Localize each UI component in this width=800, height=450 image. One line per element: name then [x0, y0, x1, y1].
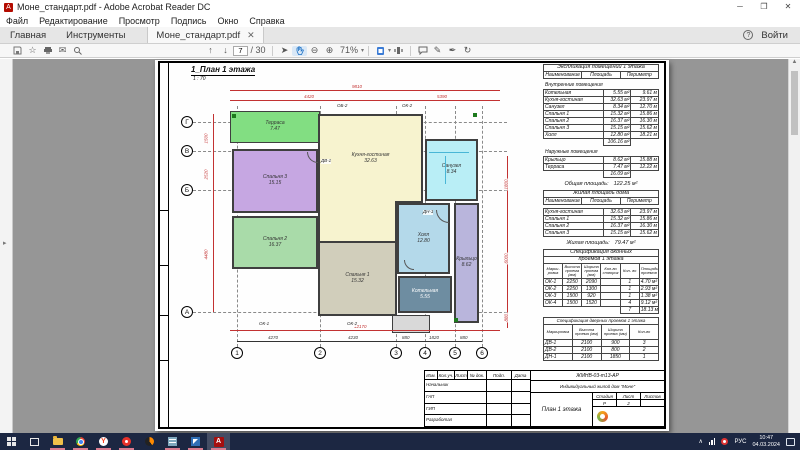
action-center-icon[interactable] — [786, 438, 795, 446]
table-cell: 4 — [620, 300, 639, 307]
element: 8.62 — [462, 263, 472, 269]
element: 5390 — [436, 95, 448, 100]
menu-bar: Файл Редактирование Просмотр Подпись Окн… — [0, 14, 800, 27]
explication-rows: Котельная5.55 м²9.61 м Кухня-гостиная32.… — [543, 89, 659, 146]
menu-sign[interactable]: Подпись — [171, 16, 207, 26]
element — [191, 437, 200, 446]
element: 880 — [505, 313, 510, 323]
element — [145, 437, 154, 446]
element: 122.25 м² — [614, 181, 638, 187]
element: ЖМНВ-03-т13-АР Индивидуальный жилой дом … — [531, 371, 664, 426]
table-cell: ДВ-2 — [544, 347, 573, 354]
table-cell: 9.12 м² — [639, 300, 658, 307]
window-controls: ─ ❐ ✕ — [728, 0, 800, 14]
blue-app-icon[interactable] — [184, 433, 207, 450]
table-cell: 16.30 м — [631, 118, 659, 125]
table-row: ДВ-221008002 — [544, 347, 659, 354]
table-row: ОК-12250209014.70 м² — [544, 279, 659, 286]
element — [158, 265, 168, 266]
element: Котельная5.55 м²9.61 м Кухня-гостиная32.… — [544, 90, 659, 146]
table-cell: Кол-во створок — [601, 264, 620, 279]
element — [418, 46, 428, 55]
windows-spec-table: Спецификация оконных проемов 1 этажа Мар… — [543, 249, 659, 314]
table-row: 106.16 м² — [544, 139, 659, 146]
table-cell: 18.13 м² — [639, 307, 658, 314]
yandex-browser-icon[interactable]: Y — [92, 433, 115, 450]
table-cell: Марки- ровка — [544, 264, 563, 279]
titleblock-role-row: Разработал — [425, 415, 530, 426]
element — [272, 46, 273, 56]
table-cell: 15.86 м — [631, 111, 659, 118]
axis-row: Г — [181, 116, 193, 128]
element: 7.47 — [270, 127, 280, 133]
table-cell: Кухня-гостиная — [544, 97, 604, 104]
element: 8.34 — [447, 170, 457, 176]
table-row: ОК-3150092011.38 м² — [544, 293, 659, 300]
pdf-page: 1_План 1 этажа 1 : 70 Терраса7.47 Спальн… — [155, 60, 669, 431]
tab-document[interactable]: Моне_стандарт.pdf ✕ — [147, 27, 263, 43]
table-cell: 15.15 м² — [603, 125, 631, 132]
tab-home[interactable]: Главная — [0, 27, 56, 43]
table-cell: Спальня 2 — [544, 223, 604, 230]
element: 2 — [617, 400, 641, 406]
element: Экспликация помещений 1 этажа Наименован… — [544, 65, 659, 79]
table-cell: 16.09 м² — [603, 171, 631, 178]
zoom-level[interactable]: 71% — [337, 44, 361, 57]
teal-app-icon[interactable] — [161, 433, 184, 450]
element — [487, 392, 512, 403]
tab-close-icon[interactable]: ✕ — [247, 30, 255, 41]
element: Начальник — [425, 380, 487, 391]
page-down-icon[interactable]: ↓ — [218, 44, 233, 57]
table-row: Экспликация помещений 1 этажа — [544, 65, 659, 72]
element — [43, 46, 53, 55]
element: 4270 — [268, 336, 278, 341]
menu-edit[interactable]: Редактирование — [39, 16, 108, 26]
table-cell: 4.70 м² — [639, 279, 658, 286]
table-cell: Спальня 1 — [544, 111, 604, 118]
table-row: ДН-1210018501 — [544, 354, 659, 361]
element: 1500 — [205, 132, 210, 144]
table-cell: 15.88 м — [631, 157, 659, 164]
table-cell: 900 — [601, 340, 630, 347]
hand-tool-icon[interactable] — [292, 46, 307, 56]
element: Листов — [641, 393, 664, 399]
page-number-input[interactable] — [233, 46, 248, 56]
dim-line — [230, 330, 500, 331]
table-cell: 1520 — [582, 300, 601, 307]
table-row: Котельная5.55 м²9.61 м — [544, 90, 659, 97]
table-cell: 15.86 м — [631, 216, 659, 223]
table-cell: Спальня 2 — [544, 118, 604, 125]
element: Р — [593, 400, 617, 406]
opening-mark: ОК-1 — [259, 322, 269, 327]
chevron-down-icon[interactable]: ▾ — [361, 47, 364, 54]
table-row: проемов 1 этажа — [544, 257, 659, 264]
notifier-badge-icon[interactable] — [721, 438, 728, 445]
element: Подп. — [487, 371, 512, 379]
table-cell: 1 — [620, 279, 639, 286]
tables-column: Экспликация помещений 1 этажа Наименован… — [543, 64, 659, 364]
element — [7, 442, 11, 446]
title-block: Изм. Кол.уч. Лист № док. Подп. Дата Нача… — [424, 370, 665, 427]
table-cell: Кол- во — [620, 264, 639, 279]
menu-file[interactable]: Файл — [6, 16, 28, 26]
language-indicator[interactable]: РУС — [734, 439, 746, 445]
zoom-out-icon[interactable]: ⊖ — [307, 44, 322, 57]
element: 2520 — [205, 168, 210, 180]
table-cell: проемов 1 этажа — [544, 257, 659, 264]
system-tray: ∧ РУС 10:47 04.03.2024 — [699, 435, 800, 448]
window-titlebar: A Моне_стандарт.pdf - Adobe Acrobat Read… — [0, 0, 800, 14]
room-kitchen-ext — [318, 201, 397, 243]
table-cell — [601, 300, 620, 307]
table-cell: ДВ-1 — [544, 340, 573, 347]
room-bedroom1: Спальня 115.32 — [318, 241, 397, 316]
element — [487, 415, 512, 426]
table-cell: 1850 — [601, 354, 630, 361]
element: Разработал — [425, 415, 487, 426]
table-cell: ОК-1 — [544, 279, 563, 286]
table-cell: 1 — [630, 354, 659, 361]
table-row: Крыльцо8.62 м²15.88 м — [544, 157, 659, 164]
element: 1820 — [429, 336, 439, 341]
axis-col: 5 — [449, 347, 461, 359]
element: СтадияЛистЛистов Р2 — [593, 393, 664, 426]
axis-col: 3 — [390, 347, 402, 359]
element: 4480 — [205, 248, 210, 260]
explorer-icon[interactable] — [46, 433, 69, 450]
table-cell: 16.37 м² — [603, 223, 631, 230]
element — [76, 437, 85, 446]
element — [711, 440, 713, 445]
table-cell: Спецификация дверных проемов 1 этажа — [544, 318, 659, 325]
table-cell: 15.32 м² — [603, 216, 631, 223]
document-code: ЖМНВ-03-т13-АР — [531, 371, 664, 381]
element: Крыльцо8.62 м²15.88 м Терраса7.47 м²12.2… — [544, 157, 659, 178]
dim-line — [237, 341, 482, 342]
table-cell: Периметр — [620, 72, 658, 79]
room-terrace: Терраса7.47 — [230, 111, 320, 143]
element: 4420 — [303, 95, 315, 100]
table-cell: 3 — [630, 340, 659, 347]
pencil-icon[interactable]: ✎ — [430, 44, 445, 57]
element — [397, 47, 400, 54]
element — [512, 404, 529, 415]
room-bathroom: Санузел8.34 — [425, 139, 478, 201]
table-cell: 1.38 м² — [639, 293, 658, 300]
tab-document-label: Моне_стандарт.pdf — [156, 30, 240, 41]
element — [410, 46, 411, 56]
table-row: Марки- ровка Высота проема (мм) Ширина п… — [544, 264, 659, 279]
zoom-in-icon[interactable]: ⊕ — [322, 44, 337, 57]
element: Стадия — [593, 393, 617, 399]
table-cell: 12.80 м² — [603, 132, 631, 139]
table-cell: 2250 — [563, 286, 582, 293]
table-cell: 2100 — [572, 347, 601, 354]
table-cell — [631, 139, 659, 146]
room-bedroom3: Спальня 315.15 — [232, 149, 318, 213]
element: Изм. Кол.уч. Лист № док. Подп. Дата Нача… — [425, 371, 531, 426]
time: 10:47 — [759, 435, 773, 441]
comment-icon[interactable] — [415, 46, 430, 55]
logo-icon — [597, 411, 608, 422]
orange-app-icon[interactable] — [138, 433, 161, 450]
task-view-icon[interactable] — [23, 433, 46, 450]
scrollbar-thumb[interactable] — [791, 71, 798, 135]
company-logo — [593, 407, 664, 426]
element — [512, 415, 529, 426]
table-cell: Спальня 3 — [544, 230, 604, 237]
axis-col: 6 — [476, 347, 488, 359]
titleblock-role-row: ГАП — [425, 392, 530, 404]
page-view-icon[interactable] — [391, 46, 406, 55]
taskbar: Y A ∧ РУС 10:47 04.03.2024 — [0, 433, 800, 450]
table-cell: 23.97 м — [631, 97, 659, 104]
table-cell: Периметр — [620, 198, 658, 205]
element: Жилая площадь дома Наименование Площадь … — [544, 191, 659, 205]
element — [158, 210, 168, 211]
room-bedroom2: Спальня 216.37 — [232, 216, 318, 269]
tab-tools[interactable]: Инструменты — [56, 27, 135, 43]
titleblock-role-row: Начальник — [425, 380, 530, 392]
sheet-title: План 1 этажа — [531, 393, 593, 426]
interior-dim-line — [445, 156, 446, 184]
table-cell: 2090 — [582, 279, 601, 286]
scrollbar[interactable]: ▲ — [788, 59, 800, 433]
living-total-line: Жилая площадь:79.47 м² — [543, 240, 659, 246]
stage-header-row: СтадияЛистЛистов — [593, 393, 664, 400]
table-cell: 23.97 м — [631, 209, 659, 216]
table-cell — [601, 286, 620, 293]
element: 4230 — [348, 336, 358, 341]
table-cell: 18.21 м — [631, 132, 659, 139]
table-row: ОК-41500152049.12 м² — [544, 300, 659, 307]
page-up-icon[interactable]: ↑ — [203, 44, 218, 57]
dim-line — [213, 114, 214, 312]
marker-icon — [232, 114, 236, 118]
element — [45, 47, 51, 49]
element: План 1 этажа СтадияЛистЛистов Р2 — [531, 393, 664, 426]
table-cell — [544, 171, 604, 178]
signature-icon[interactable]: ✒ — [445, 44, 460, 57]
table-cell: ОК-2 — [544, 286, 563, 293]
toolbar: ☆ ✉ ↑ ↓ / 30 ➤ ⊖ ⊕ 71%▾ ▾ ✎ ✒ ↻ — [0, 44, 800, 58]
opening-mark: ДН-1 — [423, 210, 433, 215]
titleblock-role-row: ГИП — [425, 404, 530, 416]
element: A — [214, 437, 224, 447]
drawing-title: 1_План 1 этажа — [191, 65, 255, 76]
project-name: Индивидуальный жилой дом "Моне" — [531, 381, 664, 393]
sheet-binding-line — [168, 61, 169, 429]
table-cell: Ширина проема (мм) — [601, 325, 630, 340]
chevron-up-icon[interactable]: ∧ — [699, 438, 703, 445]
clock[interactable]: 10:47 04.03.2024 — [752, 435, 780, 448]
element — [376, 46, 385, 56]
acrobat-icon[interactable]: A — [207, 433, 230, 450]
table-row: Спальня 216.37 м²16.30 м — [544, 223, 659, 230]
table-row: Спальня 216.37 м²16.30 м — [544, 118, 659, 125]
element — [75, 48, 80, 53]
chrome-icon[interactable] — [69, 433, 92, 450]
element — [158, 360, 168, 361]
interior-dim-line — [429, 152, 469, 153]
maximize-icon[interactable]: ❐ — [752, 0, 776, 14]
scroll-up-icon[interactable]: ▲ — [792, 59, 798, 65]
element — [53, 438, 63, 445]
table-row: Спецификация дверных проемов 1 этажа — [544, 318, 659, 325]
table-row: Спальня 315.15 м²15.62 м — [544, 125, 659, 132]
element: ГИП — [425, 404, 487, 415]
table-cell: Жилая площадь дома — [544, 191, 659, 198]
save-icon[interactable] — [10, 46, 25, 55]
table-cell: Высота проема (мм) — [563, 264, 582, 279]
page-count-label: / 30 — [248, 44, 268, 57]
network-icon[interactable] — [709, 438, 716, 445]
element — [168, 437, 177, 446]
element — [487, 380, 512, 391]
opening-mark: ОК-2 — [402, 104, 412, 109]
explication-outdoor-rows: Крыльцо8.62 м²15.88 м Терраса7.47 м²12.2… — [543, 156, 659, 178]
table-cell: 7 — [620, 307, 639, 314]
table-cell: 8.62 м² — [603, 157, 631, 164]
nav-pane-collapsed[interactable]: ▸ — [0, 59, 13, 433]
start-icon[interactable] — [0, 433, 23, 450]
element: 32.63 — [364, 159, 377, 165]
print-icon[interactable] — [40, 46, 55, 55]
table-cell: 16.30 м — [631, 223, 659, 230]
table-cell: 15.62 м — [631, 125, 659, 132]
element — [512, 380, 529, 391]
sign-in-button[interactable]: Войти — [761, 30, 788, 41]
element — [401, 49, 403, 52]
table-row: Спальня 315.15 м²15.62 м — [544, 230, 659, 237]
table-cell: 2100 — [572, 354, 601, 361]
element: 15.15 — [269, 181, 282, 187]
table-cell: 1 — [620, 293, 639, 300]
window-title: Моне_стандарт.pdf - Adobe Acrobat Reader… — [17, 2, 210, 12]
element: Лист — [455, 371, 468, 379]
element: 880 — [402, 336, 410, 341]
table-cell: Площадь — [582, 72, 620, 79]
search-icon[interactable] — [70, 46, 85, 55]
table-cell: 1 — [620, 286, 639, 293]
star-icon[interactable]: ☆ — [25, 44, 40, 57]
close-icon[interactable]: ✕ — [776, 0, 800, 14]
fit-page-icon[interactable] — [373, 46, 388, 56]
pointer-icon[interactable]: ➤ — [277, 44, 292, 57]
table-cell: Экспликация помещений 1 этажа — [544, 65, 659, 72]
element — [30, 438, 39, 446]
element — [295, 46, 304, 56]
element: 79.47 м² — [615, 240, 636, 246]
table-cell: Терраса — [544, 164, 604, 171]
table-cell: 106.16 м² — [603, 139, 631, 146]
opening-mark: ДВ-1 — [321, 159, 331, 164]
table-cell: Спецификация оконных — [544, 250, 659, 257]
expand-pane-icon[interactable]: ▸ — [3, 239, 7, 247]
element: 16.37 — [269, 243, 282, 249]
table-cell: 32.63 м² — [603, 209, 631, 216]
table-cell: 1300 — [582, 286, 601, 293]
element — [7, 437, 11, 441]
element — [16, 51, 19, 54]
table-row: 16.09 м² — [544, 171, 659, 178]
element — [46, 52, 50, 54]
menu-help[interactable]: Справка — [249, 16, 284, 26]
room-porch: Крыльцо8.62 — [454, 203, 479, 323]
table-cell: Санузел — [544, 104, 604, 111]
element: Дата — [512, 371, 529, 379]
element: 9810 — [351, 85, 363, 90]
table-row: 718.13 м² — [544, 307, 659, 314]
element — [73, 46, 82, 55]
element: Спецификация дверных проемов 1 этажа Мар… — [544, 318, 659, 361]
element — [368, 46, 369, 56]
marker-icon — [454, 318, 458, 322]
element — [79, 52, 82, 55]
tab-bar: Главная Инструменты Моне_стандарт.pdf ✕ … — [0, 27, 800, 44]
element — [297, 46, 303, 54]
table-cell: Спальня 3 — [544, 125, 604, 132]
living-area-table: Жилая площадь дома Наименование Площадь … — [543, 190, 659, 205]
table-cell: Наименование — [544, 198, 582, 205]
help-icon[interactable]: ? — [743, 30, 753, 40]
email-icon[interactable]: ✉ — [55, 44, 70, 57]
table-cell: Маркировка — [544, 325, 573, 340]
menu-view[interactable]: Просмотр — [119, 16, 160, 26]
element: 1800 — [505, 178, 510, 190]
table-cell: 15.62 м — [631, 230, 659, 237]
table-cell: 1500 — [563, 293, 582, 300]
minimize-icon[interactable]: ─ — [728, 0, 752, 14]
element — [13, 46, 22, 55]
table-cell: ОК-3 — [544, 293, 563, 300]
section-label: Внутренние помещения — [545, 82, 659, 88]
element — [394, 49, 396, 52]
table-cell: Площадь проемов — [639, 264, 658, 279]
element — [641, 400, 664, 406]
axis-row: А — [181, 306, 193, 318]
table-row: Спальня 115.32 м²15.86 м — [544, 216, 659, 223]
table-row: ОК-22250130012.93 м² — [544, 286, 659, 293]
rotate-icon[interactable]: ↻ — [460, 44, 475, 57]
table-row: Кухня-гостиная32.63 м²23.97 м — [544, 97, 659, 104]
document-area: 1_План 1 этажа 1 : 70 Терраса7.47 Спальн… — [0, 59, 800, 433]
element — [393, 46, 404, 55]
axis-col: 2 — [314, 347, 326, 359]
table-cell: 12.22 м — [631, 164, 659, 171]
element — [487, 404, 512, 415]
acrobat-app-icon: A — [4, 3, 13, 12]
element — [419, 47, 427, 54]
element — [12, 437, 16, 441]
element: 880 — [460, 336, 468, 341]
element: Жилая площадь: — [566, 240, 609, 246]
table-cell: 800 — [601, 347, 630, 354]
table-cell: 7.47 м² — [603, 164, 631, 171]
table-row: Спальня 115.32 м²15.86 м — [544, 111, 659, 118]
room-boiler: Котельная5.55 — [398, 276, 452, 313]
menu-window[interactable]: Окно — [217, 16, 238, 26]
table-row: Кухня-гостиная32.63 м²23.97 м — [544, 209, 659, 216]
table-cell: Холл — [544, 132, 604, 139]
table-cell: ОК-4 — [544, 300, 563, 307]
table-cell: Спальня 1 — [544, 216, 604, 223]
table-cell: 9.61 м — [631, 90, 659, 97]
table-cell: 16.37 м² — [603, 118, 631, 125]
red-app-icon[interactable] — [115, 433, 138, 450]
